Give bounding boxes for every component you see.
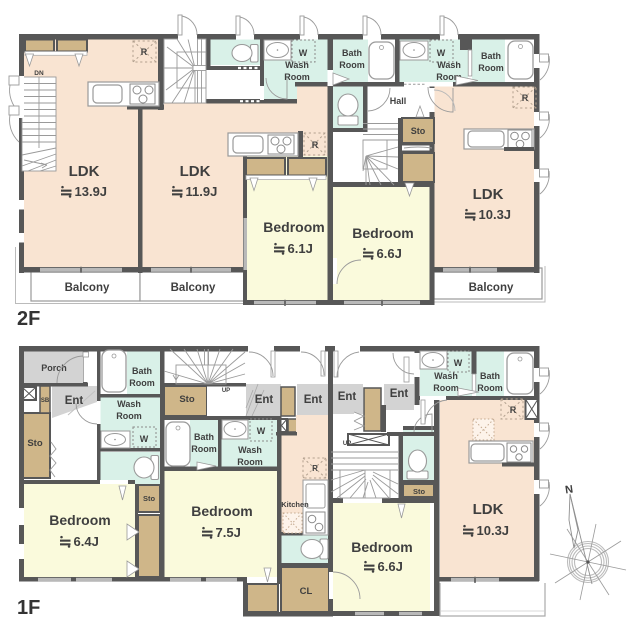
svg-text:Balcony: Balcony bbox=[469, 282, 514, 294]
svg-text:Wash: Wash bbox=[117, 399, 141, 409]
svg-text:Wash: Wash bbox=[285, 60, 309, 70]
svg-text:6.6J: 6.6J bbox=[377, 246, 402, 261]
svg-text:Porch: Porch bbox=[41, 363, 67, 373]
svg-text:Sto: Sto bbox=[411, 126, 426, 136]
svg-text:Bath: Bath bbox=[342, 48, 362, 58]
svg-text:Bedroom: Bedroom bbox=[263, 219, 324, 235]
svg-text:Bath: Bath bbox=[480, 371, 500, 381]
svg-text:Room: Room bbox=[129, 378, 155, 388]
svg-text:Ent: Ent bbox=[338, 391, 357, 403]
svg-text:R: R bbox=[141, 47, 148, 57]
svg-text:R: R bbox=[522, 93, 529, 103]
svg-text:LDK: LDK bbox=[473, 501, 504, 518]
svg-text:W: W bbox=[299, 48, 308, 58]
svg-text:R: R bbox=[510, 405, 517, 415]
svg-text:Wash: Wash bbox=[437, 60, 461, 70]
svg-text:W: W bbox=[454, 358, 463, 368]
svg-text:N: N bbox=[564, 483, 574, 496]
svg-text:Bedroom: Bedroom bbox=[49, 512, 110, 528]
svg-text:Room: Room bbox=[237, 457, 263, 467]
svg-text:Wash: Wash bbox=[434, 371, 458, 381]
svg-text:6.1J: 6.1J bbox=[288, 241, 313, 256]
svg-text:Bedroom: Bedroom bbox=[352, 225, 413, 241]
svg-text:7.5J: 7.5J bbox=[216, 525, 241, 540]
svg-text:Ent: Ent bbox=[255, 394, 274, 406]
svg-text:Bath: Bath bbox=[194, 432, 214, 442]
svg-text:Balcony: Balcony bbox=[65, 282, 110, 294]
svg-text:CL: CL bbox=[300, 586, 313, 597]
svg-text:Sto: Sto bbox=[143, 494, 156, 503]
svg-text:Bath: Bath bbox=[132, 366, 152, 376]
svg-text:Hall: Hall bbox=[390, 96, 407, 106]
svg-text:LDK: LDK bbox=[69, 163, 100, 180]
svg-text:10.3J: 10.3J bbox=[477, 523, 510, 538]
svg-text:2F: 2F bbox=[17, 308, 40, 330]
svg-text:11.9J: 11.9J bbox=[186, 184, 218, 199]
svg-text:R: R bbox=[312, 140, 319, 150]
svg-text:DN: DN bbox=[34, 70, 44, 77]
svg-text:LDK: LDK bbox=[180, 163, 211, 180]
svg-text:6.4J: 6.4J bbox=[74, 534, 99, 549]
svg-text:Sto: Sto bbox=[413, 487, 426, 496]
svg-text:Ent: Ent bbox=[390, 388, 409, 400]
svg-text:Ent: Ent bbox=[304, 394, 323, 406]
svg-text:Room: Room bbox=[477, 383, 503, 393]
svg-text:Bedroom: Bedroom bbox=[191, 503, 252, 519]
svg-text:SB: SB bbox=[41, 398, 50, 404]
svg-text:Bedroom: Bedroom bbox=[351, 539, 412, 555]
svg-text:1F: 1F bbox=[17, 597, 40, 619]
svg-text:Sto: Sto bbox=[179, 394, 195, 405]
svg-text:Room: Room bbox=[433, 383, 459, 393]
svg-text:UP: UP bbox=[343, 441, 351, 447]
svg-text:Bath: Bath bbox=[481, 51, 501, 61]
svg-text:10.3J: 10.3J bbox=[479, 207, 512, 222]
svg-text:Room: Room bbox=[284, 72, 310, 82]
svg-text:6.6J: 6.6J bbox=[378, 559, 403, 574]
svg-text:Ent: Ent bbox=[65, 395, 84, 407]
svg-text:Wash: Wash bbox=[238, 445, 262, 455]
svg-text:W: W bbox=[257, 426, 266, 436]
svg-text:Sto: Sto bbox=[27, 438, 43, 449]
svg-text:Room: Room bbox=[191, 444, 217, 454]
svg-text:W: W bbox=[437, 48, 446, 58]
svg-text:Kitchen: Kitchen bbox=[281, 500, 309, 509]
svg-text:Room: Room bbox=[339, 60, 365, 70]
svg-text:R: R bbox=[312, 464, 318, 473]
svg-text:Balcony: Balcony bbox=[171, 282, 216, 294]
svg-text:UP: UP bbox=[222, 388, 230, 394]
svg-text:Room: Room bbox=[478, 63, 504, 73]
svg-text:Room: Room bbox=[116, 411, 142, 421]
svg-text:LDK: LDK bbox=[473, 186, 504, 203]
svg-text:13.9J: 13.9J bbox=[75, 184, 108, 199]
svg-text:W: W bbox=[140, 434, 149, 444]
